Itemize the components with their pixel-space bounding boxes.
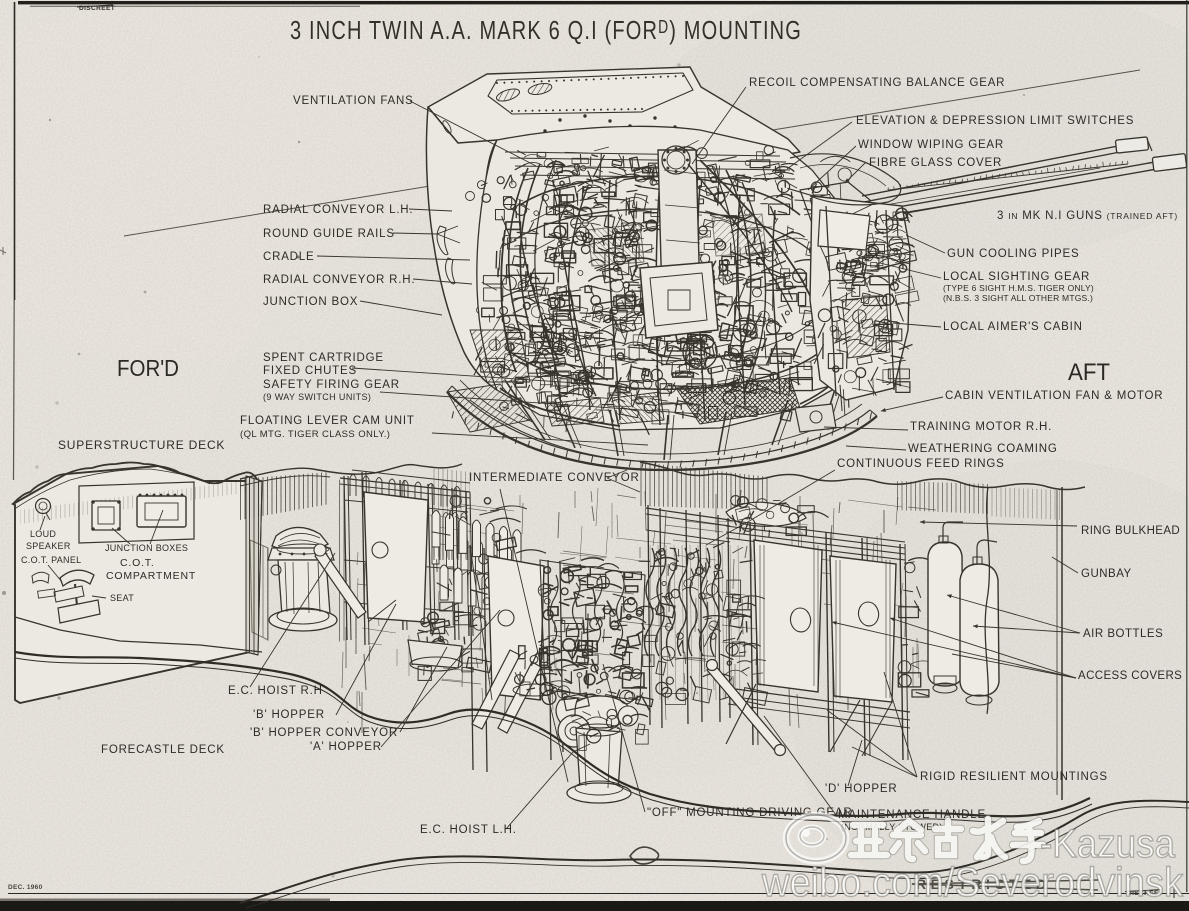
svg-text:AIR BOTTLES: AIR BOTTLES [1083,628,1163,640]
svg-text:FOR'D: FOR'D [117,355,179,381]
svg-text:C.O.T. PANEL: C.O.T. PANEL [21,555,81,565]
svg-text:CRADLE: CRADLE [263,251,314,263]
svg-text:E.C. HOIST R.H: E.C. HOIST R.H [228,685,323,697]
svg-text:RADIAL CONVEYOR L.H.: RADIAL CONVEYOR L.H. [263,204,413,216]
svg-text:3 INCH TWIN A.A. MARK 6 Q.I (F: 3 INCH TWIN A.A. MARK 6 Q.I (FORD) MOUNT… [290,15,802,45]
svg-text:COMPARTMENT: COMPARTMENT [106,570,196,582]
svg-text:FIBRE GLASS COVER: FIBRE GLASS COVER [869,157,1002,169]
svg-text:RADIAL CONVEYOR R.H.: RADIAL CONVEYOR R.H. [263,274,415,286]
svg-text:FIXED CHUTES: FIXED CHUTES [263,365,357,377]
svg-text:(9 WAY SWITCH UNITS): (9 WAY SWITCH UNITS) [263,392,371,402]
svg-text:LOCAL SIGHTING GEAR: LOCAL SIGHTING GEAR [943,271,1090,283]
svg-text:RING BULKHEAD: RING BULKHEAD [1081,525,1180,537]
svg-text:(TYPE 6 SIGHT H.M.S. TIGER ONL: (TYPE 6 SIGHT H.M.S. TIGER ONLY) [943,283,1094,293]
svg-text:E.C. HOIST L.H.: E.C. HOIST L.H. [420,824,517,836]
svg-text:WINDOW WIPING GEAR: WINDOW WIPING GEAR [858,139,1004,151]
svg-text:JUNCTION BOXES: JUNCTION BOXES [105,543,188,553]
svg-text:VENTILATION FANS: VENTILATION FANS [293,95,414,107]
svg-text:CABIN VENTILATION FAN & MOTOR: CABIN VENTILATION FAN & MOTOR [945,390,1163,402]
svg-text:LOUD: LOUD [30,529,56,539]
svg-text:FLOATING LEVER CAM UNIT: FLOATING LEVER CAM UNIT [240,415,415,427]
svg-text:CONTINUOUS FEED RINGS: CONTINUOUS FEED RINGS [837,458,1005,470]
svg-text:(N.B.S. 3 SIGHT ALL OTHER MTGS: (N.B.S. 3 SIGHT ALL OTHER MTGS.) [943,293,1093,303]
svg-text:ELEVATION & DEPRESSION LIMIT S: ELEVATION & DEPRESSION LIMIT SWITCHES [856,115,1134,127]
svg-text:DEC. 1960: DEC. 1960 [8,884,43,891]
svg-text:ACCESS COVERS: ACCESS COVERS [1078,670,1182,682]
svg-text:WEATHERING COAMING: WEATHERING COAMING [908,443,1058,455]
svg-text:(QL MTG. TIGER CLASS ONLY.): (QL MTG. TIGER CLASS ONLY.) [240,429,390,440]
svg-text:C.O.T.: C.O.T. [120,557,155,569]
svg-text:'D' HOPPER: 'D' HOPPER [825,783,897,795]
svg-text:SEAT: SEAT [110,593,134,603]
svg-text:TRAINING MOTOR R.H.: TRAINING MOTOR R.H. [910,421,1052,433]
svg-text:SUPERSTRUCTURE DECK: SUPERSTRUCTURE DECK [58,438,225,452]
svg-text:RECOIL COMPENSATING BALANCE GE: RECOIL COMPENSATING BALANCE GEAR [749,77,1005,89]
svg-text:AFT: AFT [1068,359,1110,386]
svg-text:'A' HOPPER: 'A' HOPPER [310,741,382,753]
svg-text:SPENT CARTRIDGE: SPENT CARTRIDGE [263,352,384,364]
svg-text:'B' HOPPER CONVEYOR: 'B' HOPPER CONVEYOR [250,727,398,739]
svg-text:RIGID RESILIENT MOUNTINGS: RIGID RESILIENT MOUNTINGS [920,771,1108,783]
svg-text:SPEAKER: SPEAKER [26,541,71,551]
svg-text:GUN COOLING PIPES: GUN COOLING PIPES [947,248,1079,260]
svg-text:ROUND GUIDE RAILS: ROUND GUIDE RAILS [263,228,395,240]
svg-text:FORECASTLE DECK: FORECASTLE DECK [101,744,225,756]
svg-text:3 IN MK N.I GUNS (TRAINED AFT): 3 IN MK N.I GUNS (TRAINED AFT) [997,210,1178,222]
svg-text:SAFETY FIRING GEAR: SAFETY FIRING GEAR [263,379,400,391]
svg-text:JUNCTION BOX: JUNCTION BOX [263,296,358,308]
svg-text:weibo.com/Severodvinsk: weibo.com/Severodvinsk [761,859,1183,905]
svg-text:INTERMEDIATE CONVEYOR: INTERMEDIATE CONVEYOR [469,472,640,484]
svg-text:LOCAL AIMER'S CABIN: LOCAL AIMER'S CABIN [943,321,1083,333]
svg-text:'B' HOPPER: 'B' HOPPER [253,709,325,721]
svg-text:GUNBAY: GUNBAY [1081,568,1132,580]
